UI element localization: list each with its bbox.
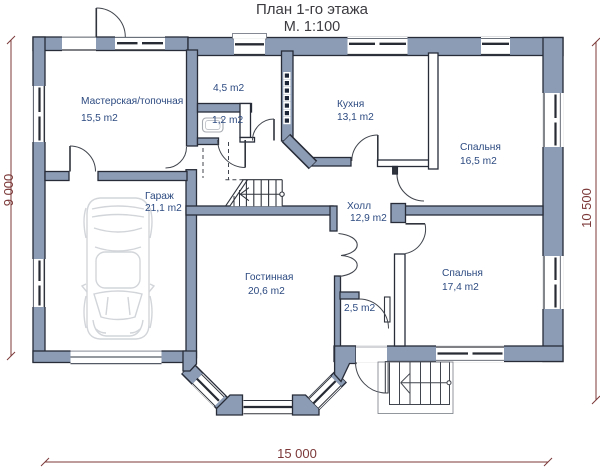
svg-text:1,2 m2: 1,2 m2 [212,115,243,126]
svg-text:М. 1:100: М. 1:100 [284,19,340,35]
svg-text:10 500: 10 500 [579,188,594,228]
svg-text:Кухня: Кухня [337,99,364,110]
svg-text:Спальня: Спальня [460,142,501,153]
svg-text:Спальня: Спальня [442,268,483,279]
svg-text:Холл: Холл [347,201,371,212]
svg-text:Гостинная: Гостинная [245,272,293,283]
svg-text:21,1 m2: 21,1 m2 [145,203,182,214]
svg-text:13,1 m2: 13,1 m2 [337,112,374,123]
svg-text:17,4 m2: 17,4 m2 [442,282,479,293]
svg-text:15 000: 15 000 [277,446,317,461]
svg-text:Мастерская/топочная: Мастерская/топочная [81,96,183,107]
svg-text:12,9 m2: 12,9 m2 [350,213,387,224]
svg-text:20,6 m2: 20,6 m2 [248,286,285,297]
svg-text:План 1-го этажа: План 1-го этажа [256,1,369,18]
svg-text:4,5 m2: 4,5 m2 [213,83,244,94]
svg-text:16,5 m2: 16,5 m2 [460,156,497,167]
svg-text:Гараж: Гараж [145,191,174,202]
svg-text:9 000: 9 000 [1,174,16,207]
svg-text:15,5 m2: 15,5 m2 [81,113,118,124]
svg-text:2,5 m2: 2,5 m2 [344,303,375,314]
